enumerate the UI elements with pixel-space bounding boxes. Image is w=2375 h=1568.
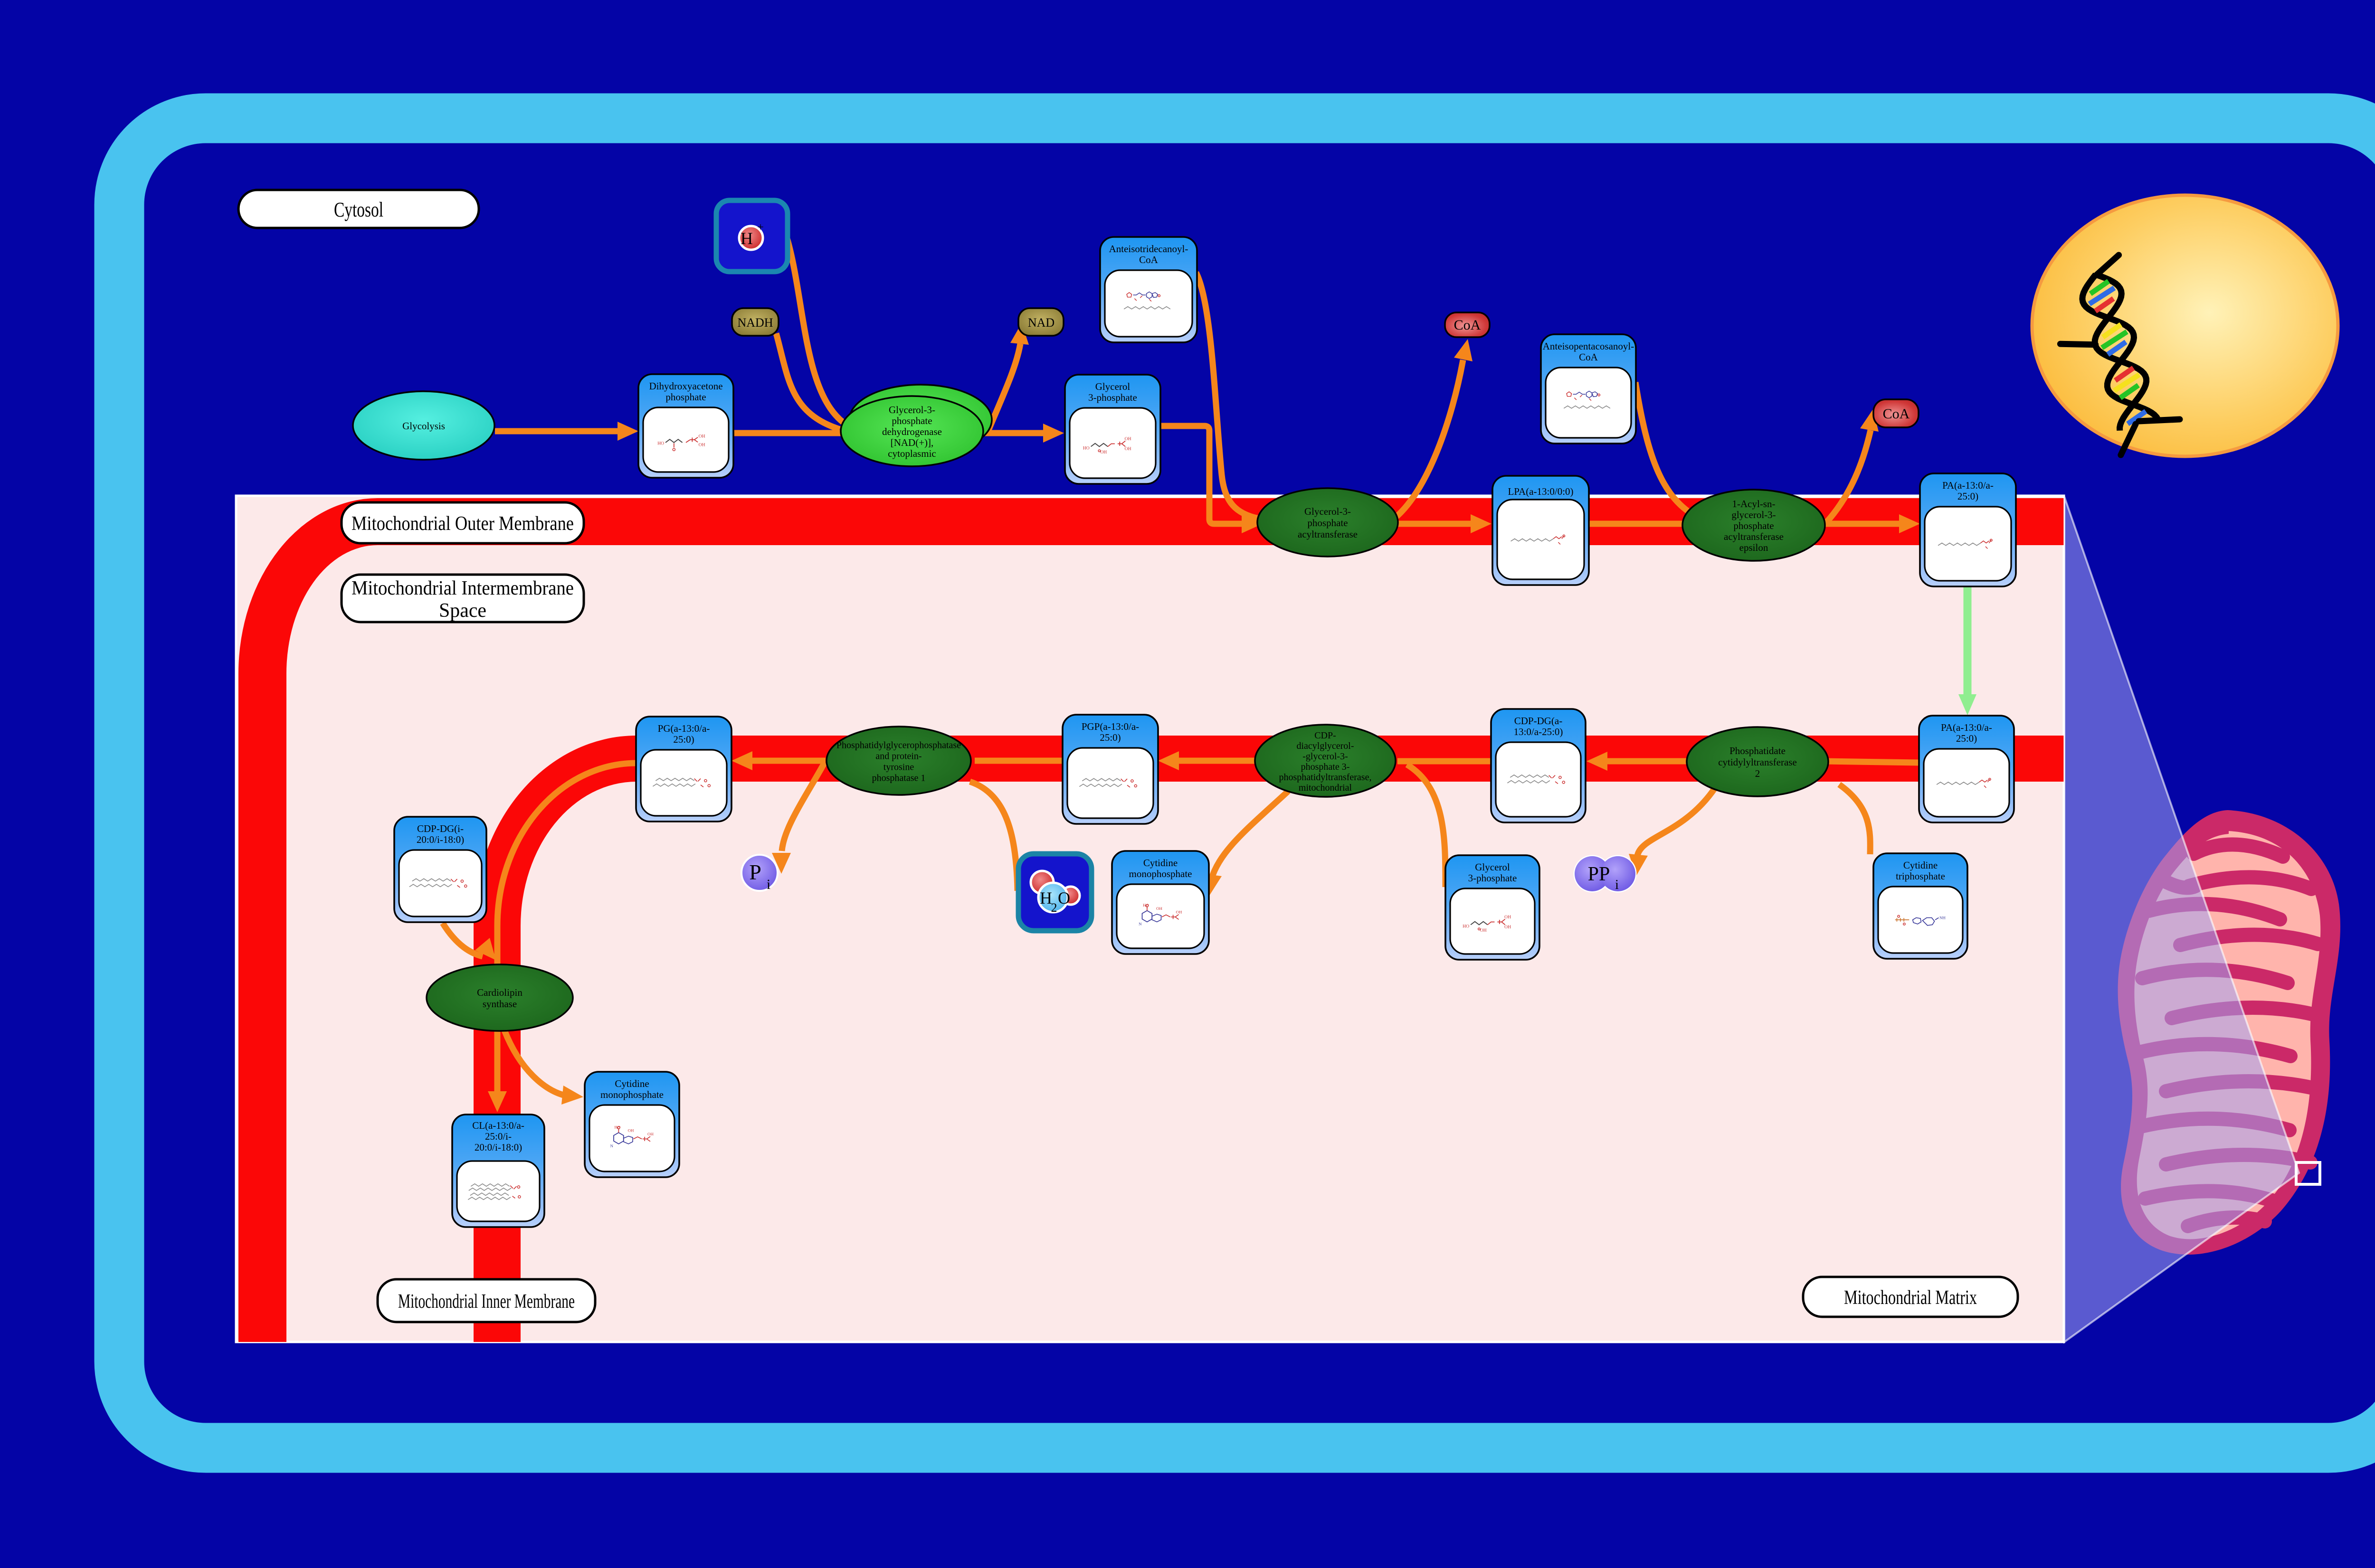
svg-text:Cytidine: Cytidine — [615, 1078, 649, 1089]
svg-text:Glycerol-3-: Glycerol-3- — [1304, 506, 1351, 517]
svg-text:[NAD(+)],: [NAD(+)], — [891, 437, 934, 448]
svg-text:acyltransferase: acyltransferase — [1724, 531, 1784, 542]
svg-text:CDP-: CDP- — [1314, 730, 1336, 741]
svg-text:P: P — [749, 860, 761, 884]
svg-text:1-Acyl-sn-: 1-Acyl-sn- — [1732, 498, 1776, 510]
svg-text:OH: OH — [699, 434, 705, 439]
svg-text:Phosphatidylglycerophosphatase: Phosphatidylglycerophosphatase — [836, 740, 961, 751]
svg-text:CoA: CoA — [1883, 406, 1910, 422]
svg-text:HO: HO — [1463, 924, 1469, 929]
svg-text:and protein-: and protein- — [875, 751, 921, 762]
svg-text:i: i — [767, 877, 770, 892]
svg-text:dehydrogenase: dehydrogenase — [882, 426, 942, 437]
svg-text:NADH: NADH — [737, 316, 773, 330]
svg-text:OH: OH — [1156, 906, 1162, 911]
svg-text:Mitochondrial Intermembrane: Mitochondrial Intermembrane — [351, 577, 574, 599]
svg-text:13:0/a-25:0): 13:0/a-25:0) — [1514, 726, 1563, 737]
svg-text:Anteisopentacosanoyl-: Anteisopentacosanoyl- — [1543, 340, 1634, 352]
svg-text:HO: HO — [615, 1124, 621, 1129]
svg-text:glycerol-3-: glycerol-3- — [1731, 509, 1776, 520]
svg-text:2: 2 — [1755, 768, 1760, 779]
svg-text:3-phosphate: 3-phosphate — [1468, 872, 1517, 884]
svg-text:Glycerol: Glycerol — [1475, 861, 1510, 873]
svg-text:25:0): 25:0) — [1957, 491, 1978, 502]
svg-text:mitochondrial: mitochondrial — [1299, 783, 1352, 793]
svg-text:PGP(a-13:0/a-: PGP(a-13:0/a- — [1082, 721, 1139, 732]
svg-text:Space: Space — [439, 600, 486, 622]
svg-text:phosphatase 1: phosphatase 1 — [872, 773, 926, 784]
svg-text:i: i — [1615, 878, 1619, 892]
svg-text:synthase: synthase — [483, 998, 517, 1010]
svg-text:HO: HO — [657, 441, 664, 446]
svg-text:CL(a-13:0/a-: CL(a-13:0/a- — [472, 1120, 524, 1131]
svg-text:OH: OH — [647, 1132, 654, 1136]
svg-text:phosphate: phosphate — [1733, 520, 1774, 531]
svg-text:-glycerol-3-: -glycerol-3- — [1302, 751, 1348, 762]
svg-text:diacylglycerol-: diacylglycerol- — [1296, 741, 1354, 751]
svg-text:cytidylyltransferase: cytidylyltransferase — [1718, 756, 1797, 768]
svg-text:O: O — [1058, 888, 1070, 907]
svg-text:20:0/i-18:0): 20:0/i-18:0) — [475, 1142, 522, 1153]
svg-text:monophosphate: monophosphate — [600, 1089, 664, 1100]
svg-text:NH: NH — [1939, 916, 1946, 920]
svg-text:Cytidine: Cytidine — [1143, 857, 1178, 869]
svg-text:CoA: CoA — [1579, 351, 1598, 363]
svg-text:OH: OH — [699, 442, 705, 447]
svg-text:Anteisotridecanoyl-: Anteisotridecanoyl- — [1109, 243, 1188, 255]
svg-text:OH: OH — [1125, 446, 1131, 452]
svg-text:N: N — [610, 1143, 614, 1148]
svg-text:PA(a-13:0/a-: PA(a-13:0/a- — [1941, 722, 1992, 733]
svg-text:phosphate: phosphate — [1307, 517, 1348, 529]
svg-text:N: N — [1139, 922, 1142, 926]
svg-text:PP: PP — [1588, 863, 1610, 885]
svg-text:H: H — [741, 229, 753, 248]
svg-text:phosphate: phosphate — [665, 391, 706, 403]
svg-text:phosphatidyltransferase,: phosphatidyltransferase, — [1279, 772, 1372, 783]
svg-text:Phosphatidate: Phosphatidate — [1729, 745, 1786, 756]
svg-text:CoA: CoA — [1454, 317, 1481, 333]
svg-text:cytoplasmic: cytoplasmic — [888, 448, 936, 459]
svg-text:Mitochondrial Outer Membrane: Mitochondrial Outer Membrane — [351, 513, 574, 535]
svg-text:Glycolysis: Glycolysis — [402, 420, 445, 432]
svg-text:monophosphate: monophosphate — [1129, 868, 1192, 879]
svg-text:LPA(a-13:0/0:0): LPA(a-13:0/0:0) — [1508, 486, 1573, 497]
svg-text:3-phosphate: 3-phosphate — [1088, 392, 1137, 403]
svg-text:HO: HO — [1083, 445, 1090, 451]
svg-text:OH: OH — [1504, 915, 1511, 920]
svg-text:acyltransferase: acyltransferase — [1298, 529, 1358, 540]
svg-text:Mitochondrial Matrix: Mitochondrial Matrix — [1844, 1287, 1977, 1309]
svg-text:20:0/i-18:0): 20:0/i-18:0) — [417, 834, 464, 845]
svg-text:2: 2 — [1051, 901, 1057, 915]
svg-text:Glycerol: Glycerol — [1095, 381, 1130, 392]
svg-text:Cytidine: Cytidine — [1903, 860, 1938, 871]
svg-text:25:0/i-: 25:0/i- — [485, 1131, 512, 1142]
svg-text:CoA: CoA — [1139, 254, 1159, 265]
svg-text:PG(a-13:0/a-: PG(a-13:0/a- — [658, 723, 710, 734]
svg-text:25:0): 25:0) — [673, 734, 694, 745]
svg-text:HO: HO — [1143, 903, 1149, 907]
svg-text:25:0): 25:0) — [1100, 732, 1121, 743]
svg-text:OH: OH — [1176, 910, 1182, 915]
svg-text:Dihydroxyacetone: Dihydroxyacetone — [649, 380, 722, 392]
svg-text:OH: OH — [1100, 450, 1107, 455]
svg-text:Glycerol-3-: Glycerol-3- — [889, 404, 935, 416]
svg-text:CDP-DG(i-: CDP-DG(i- — [417, 823, 464, 834]
svg-text:tyrosine: tyrosine — [883, 762, 914, 773]
svg-text:OH: OH — [1504, 925, 1511, 930]
svg-text:OH: OH — [1125, 436, 1131, 442]
svg-text:+: + — [757, 221, 764, 234]
svg-text:Cytosol: Cytosol — [334, 198, 383, 221]
svg-text:Mitochondrial Inner Membrane: Mitochondrial Inner Membrane — [398, 1291, 575, 1313]
svg-text:triphosphate: triphosphate — [1896, 870, 1945, 882]
svg-text:CDP-DG(a-: CDP-DG(a- — [1514, 715, 1562, 727]
svg-text:25:0): 25:0) — [1956, 733, 1977, 744]
svg-text:phosphate 3-: phosphate 3- — [1301, 762, 1350, 772]
svg-text:NAD: NAD — [1028, 316, 1054, 330]
svg-text:Cardiolipin: Cardiolipin — [477, 987, 522, 998]
svg-text:epsilon: epsilon — [1739, 542, 1768, 553]
svg-text:OH: OH — [1480, 928, 1487, 933]
svg-text:OH: OH — [628, 1128, 634, 1133]
svg-text:H: H — [1040, 888, 1052, 907]
svg-text:PA(a-13:0/a-: PA(a-13:0/a- — [1942, 480, 1994, 491]
svg-text:phosphate: phosphate — [892, 415, 932, 426]
